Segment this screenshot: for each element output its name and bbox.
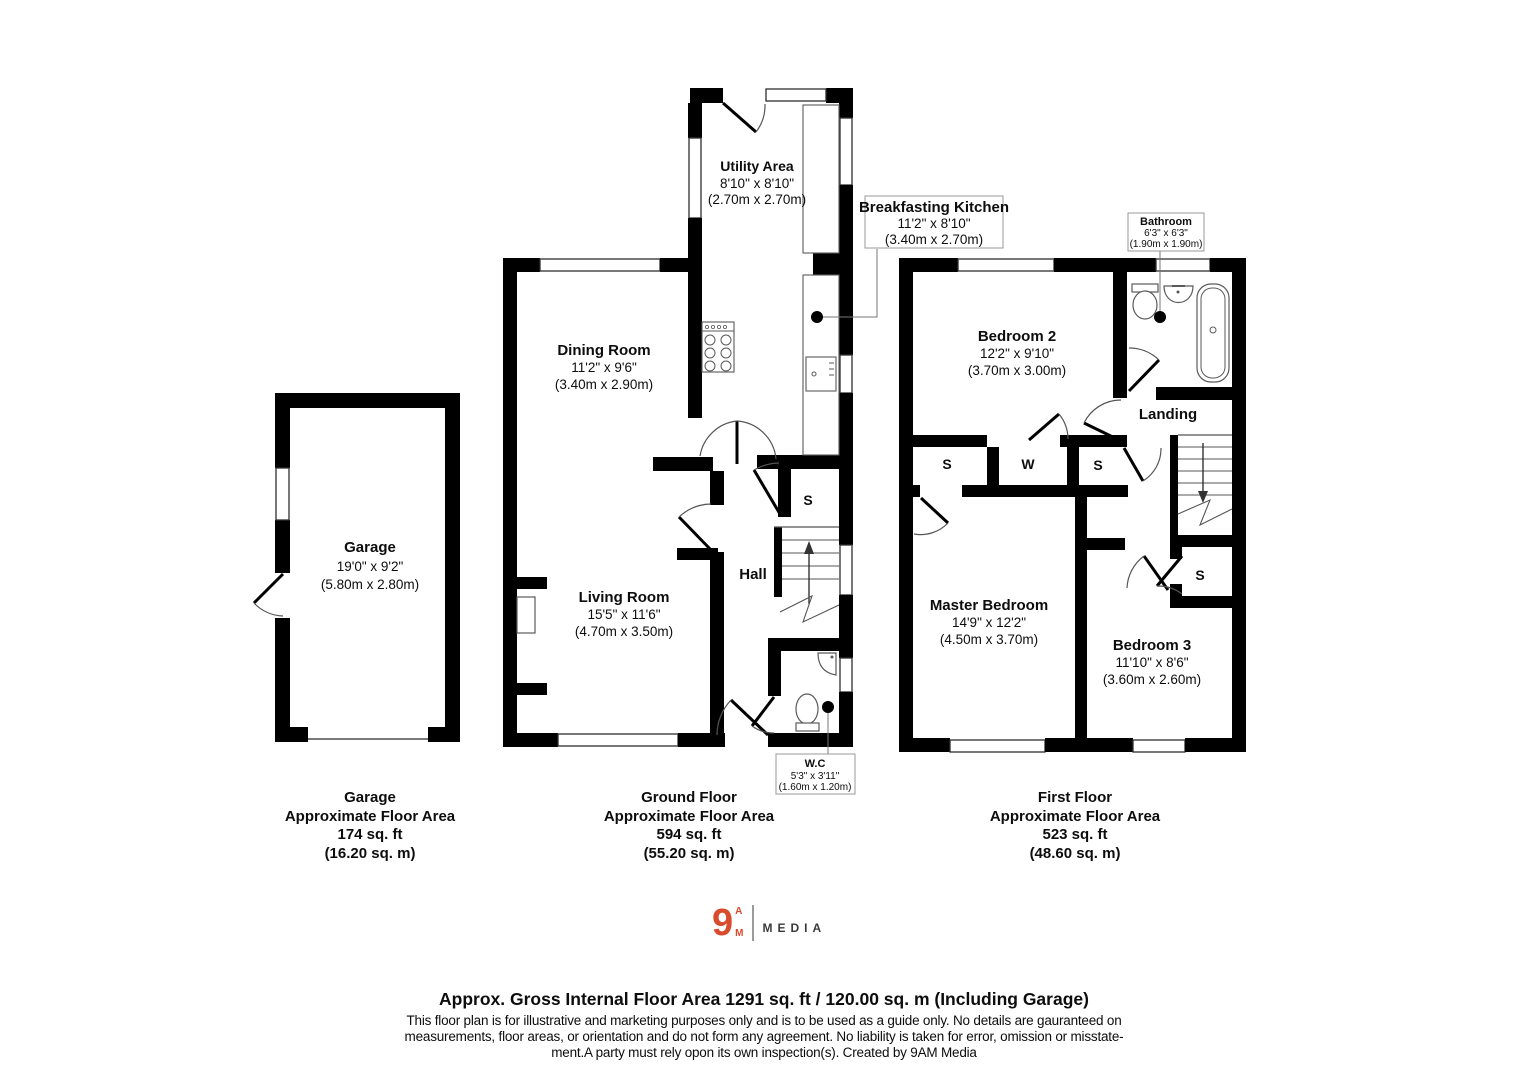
bathroom-dims-ft: 6'3" x 6'3" [1144, 228, 1188, 239]
wc-left-wall [768, 651, 781, 696]
closet-bottom-wall-b [962, 485, 1128, 497]
bathroom-toilet [1132, 284, 1158, 319]
utility-window-right [840, 118, 852, 185]
utility-kitchen-stub-wall [813, 253, 853, 275]
garage-wall-bottom-left [275, 727, 308, 742]
dining-name: Dining Room [557, 342, 650, 359]
utility-counter [803, 105, 839, 253]
first-caption-name: First Floor [925, 789, 1225, 808]
storage-door-leaf [754, 470, 780, 514]
gross-floor-area-title: Approx. Gross Internal Floor Area 1291 s… [0, 989, 1528, 1010]
bedroom2-name: Bedroom 2 [978, 328, 1056, 345]
dining-wall-top-right [660, 258, 688, 272]
disclaimer-line-3: ment.A party must rely opon its own insp… [0, 1045, 1528, 1061]
hall-name: Hall [739, 566, 767, 583]
bathroom-sink [1164, 286, 1193, 303]
bathtub [1197, 284, 1229, 382]
ground-stairs-wall [774, 527, 782, 597]
bedroom3-top-wall [1087, 538, 1125, 550]
kitchen-door-arc [700, 421, 737, 456]
understair-closet-door-leaf [1157, 556, 1182, 586]
utility-door-leaf [723, 103, 756, 132]
living-dims-ft: 15'5" x 11'6" [587, 607, 660, 622]
ground-caption-name: Ground Floor [539, 789, 839, 808]
bedroom2-door-arc [1084, 400, 1121, 423]
living-dims-m: (4.70m x 3.50m) [575, 624, 673, 639]
disclaimer: This floor plan is for illustrative and … [0, 1013, 1528, 1061]
living-window-bottom [558, 734, 678, 746]
bedroom2-bathroom-wall [1113, 272, 1127, 398]
front-door-leaf [731, 700, 768, 735]
utility-dims-m: (2.70m x 2.70m) [708, 192, 806, 207]
stove [702, 322, 734, 372]
ground-wall-bottom-b [678, 733, 725, 747]
ff-wall-top-b [1054, 258, 1156, 272]
ground-caption-area-ft: 594 sq. ft [539, 826, 839, 845]
kitchen-appliance [806, 357, 836, 391]
ground-wall-right-c [839, 595, 853, 658]
kitchen-leader-dot [811, 311, 823, 323]
garage-wall-top [275, 393, 460, 408]
garage-wall-left-c [275, 618, 290, 727]
ground-floor-caption: Ground Floor Approximate Floor Area 594 … [539, 789, 839, 863]
closet-divider-1 [987, 447, 999, 485]
utility-wall-top-left [690, 88, 723, 103]
bathroom-dims-m: (1.90m x 1.90m) [1130, 239, 1203, 250]
bedroom2-dims-ft: 12'2" x 9'10" [980, 346, 1054, 361]
kitchen-dims-m: (3.40m x 2.70m) [885, 232, 983, 247]
garage-caption-area-ft: 174 sq. ft [220, 826, 520, 845]
disclaimer-line-2: measurements, floor areas, or orientatio… [0, 1029, 1528, 1045]
kitchen-label-box: Breakfasting Kitchen 11'2" x 8'10" (3.40… [859, 196, 1009, 248]
floor-plan-canvas: Breakfasting Kitchen 11'2" x 8'10" (3.40… [0, 0, 1528, 1080]
chimney-stub-top [503, 577, 547, 589]
hall-left-wall-a [710, 471, 724, 505]
bedroom2-window-top [958, 259, 1054, 271]
utility-wall-right-a [839, 103, 853, 118]
bathroom-door-arc [1129, 348, 1159, 360]
logo-wordmark: MEDIA [762, 921, 826, 935]
logo-letter-a: A [735, 907, 743, 917]
bathroom-door-leaf [1129, 360, 1159, 391]
first-caption-area-m: (48.60 sq. m) [925, 845, 1225, 864]
storage-top-wall [757, 455, 839, 469]
living-door-arc [679, 504, 711, 517]
ff-left-storage-label: S [942, 456, 951, 472]
garage-window [276, 468, 289, 520]
first-floor-caption: First Floor Approximate Floor Area 523 s… [925, 789, 1225, 863]
ground-wall-bottom-a [503, 733, 558, 747]
master-name: Master Bedroom [930, 597, 1048, 614]
first-caption-area-ft: 523 sq. ft [925, 826, 1225, 845]
closet-divider-2 [1067, 447, 1079, 485]
utility-kitchen-divider-wall [688, 218, 702, 418]
ground-wall-right-b [839, 393, 853, 545]
ff-stairs-wall [1170, 435, 1178, 535]
ff-stairs [1178, 435, 1232, 525]
ff-mid-storage-label: S [1093, 457, 1102, 473]
wc-window-right [840, 658, 852, 692]
bedroom3-dims-m: (3.60m x 2.60m) [1103, 672, 1201, 687]
utility-wall-left-a [688, 103, 702, 138]
garage-caption: Garage Approximate Floor Area 174 sq. ft… [220, 789, 520, 863]
closet-top-wall-b [1060, 435, 1127, 447]
garage-dims-m: (5.80m x 2.80m) [321, 577, 419, 592]
garage-door-leaf [254, 574, 283, 603]
logo-letter-m: M [735, 929, 743, 939]
ground-wall-right-a [839, 275, 853, 355]
utility-door-arc [756, 104, 765, 132]
ff-wall-left [899, 258, 913, 752]
kitchen-dims-ft: 11'2" x 8'10" [897, 216, 970, 231]
wc-name: W.C [805, 758, 826, 770]
bathroom-label-box: Bathroom 6'3" x 6'3" (1.90m x 1.90m) [1128, 213, 1204, 251]
ff-wardrobe-label: W [1021, 456, 1035, 472]
utility-window-top [766, 89, 826, 101]
garage-door-arc [254, 603, 283, 616]
wc-top-wall [768, 638, 839, 651]
stair-window-right [840, 545, 852, 595]
utility-name: Utility Area [720, 158, 794, 174]
ff-wall-bottom-a [899, 738, 950, 752]
closet-bottom-wall-a [913, 485, 920, 497]
master-bedroom3-wall [1075, 497, 1087, 738]
garage-wall-left-b [275, 520, 290, 573]
garage-caption-label: Approximate Floor Area [220, 808, 520, 827]
ground-caption-label: Approximate Floor Area [539, 808, 839, 827]
bedroom3-dims-ft: 11'10" x 8'6" [1115, 655, 1188, 670]
bedroom3-window-bottom [1133, 740, 1185, 752]
master-dims-ft: 14'9" x 12'2" [952, 615, 1026, 630]
ground-stairs [774, 527, 839, 622]
9am-media-logo: 9 A M MEDIA [712, 902, 826, 944]
logo-divider [752, 905, 754, 941]
ground-wall-right-d [839, 692, 853, 747]
ground-wall-left [503, 258, 517, 747]
hall-left-wall-b [710, 552, 724, 733]
utility-window-left [689, 138, 701, 218]
wc-leader-dot [822, 701, 834, 713]
utility-dims-ft: 8'10" x 8'10" [720, 176, 794, 191]
bedroom2-dims-m: (3.70m x 3.00m) [968, 363, 1066, 378]
disclaimer-line-1: This floor plan is for illustrative and … [0, 1013, 1528, 1029]
ff-wall-right [1232, 258, 1246, 752]
closet-top-wall-a [913, 435, 987, 447]
first-caption-label: Approximate Floor Area [925, 808, 1225, 827]
understair-closet-bottom-wall [1170, 596, 1246, 608]
ff-wall-bottom-c [1185, 738, 1246, 752]
utility-wall-top-right [826, 88, 853, 103]
understair-closet-top-wall [1170, 535, 1246, 547]
dining-dims-ft: 11'2" x 9'6" [571, 360, 637, 375]
bathroom-window-top [1156, 259, 1210, 271]
ground-storage-label: S [803, 492, 812, 508]
garage-caption-area-m: (16.20 sq. m) [220, 845, 520, 864]
wc-dims-ft: 5'3" x 3'11" [791, 771, 840, 782]
wardrobe-door-leaf [1029, 414, 1059, 440]
hall-stub-wall-top [653, 457, 713, 471]
logo-letter-stack: A M [735, 907, 743, 939]
master-window-bottom [950, 740, 1045, 752]
storage-left-wall [778, 469, 791, 517]
garage-wall-bottom-right [428, 727, 460, 742]
garage-wall-left-a [275, 393, 290, 468]
logo-numeral: 9 [712, 905, 733, 941]
chimney-stub-bottom [503, 683, 547, 695]
garage-dims-ft: 19'0" x 9'2" [337, 559, 404, 574]
dining-window-top [540, 259, 660, 271]
mid-closet-door-leaf [1124, 448, 1143, 481]
kitchen-name: Breakfasting Kitchen [859, 199, 1009, 216]
garage-wall-right [445, 393, 460, 742]
wc-door-leaf [752, 697, 774, 726]
bedroom3-door-arc [1127, 556, 1144, 588]
mid-closet-door-arc [1143, 448, 1161, 481]
bathroom-leader-dot [1154, 311, 1166, 323]
wc-toilet [796, 694, 819, 731]
ff-wall-bottom-b [1045, 738, 1133, 752]
bathroom-name: Bathroom [1140, 216, 1192, 228]
ff-stairs-break-line [1178, 500, 1232, 525]
kitchen-window-right [840, 355, 852, 393]
garage-name: Garage [344, 539, 396, 556]
bathroom-bottom-wall [1156, 387, 1246, 400]
master-dims-m: (4.50m x 3.70m) [940, 632, 1038, 647]
bedroom3-name: Bedroom 3 [1113, 637, 1191, 654]
landing-name: Landing [1139, 406, 1197, 423]
hall-door-arc [737, 421, 776, 459]
utility-wall-right-b [839, 185, 853, 255]
master-door-leaf [921, 498, 948, 523]
ground-floor-unit [503, 88, 853, 747]
dining-dims-m: (3.40m x 2.90m) [555, 377, 653, 392]
living-name: Living Room [579, 589, 670, 606]
wc-label-box: W.C 5'3" x 3'11" (1.60m x 1.20m) [776, 754, 855, 794]
ff-understair-storage-label: S [1195, 567, 1204, 583]
master-door-arc [914, 523, 948, 535]
living-door-leaf [679, 517, 712, 551]
ground-caption-area-m: (55.20 sq. m) [539, 845, 839, 864]
garage-caption-name: Garage [220, 789, 520, 808]
fireplace [517, 597, 535, 633]
